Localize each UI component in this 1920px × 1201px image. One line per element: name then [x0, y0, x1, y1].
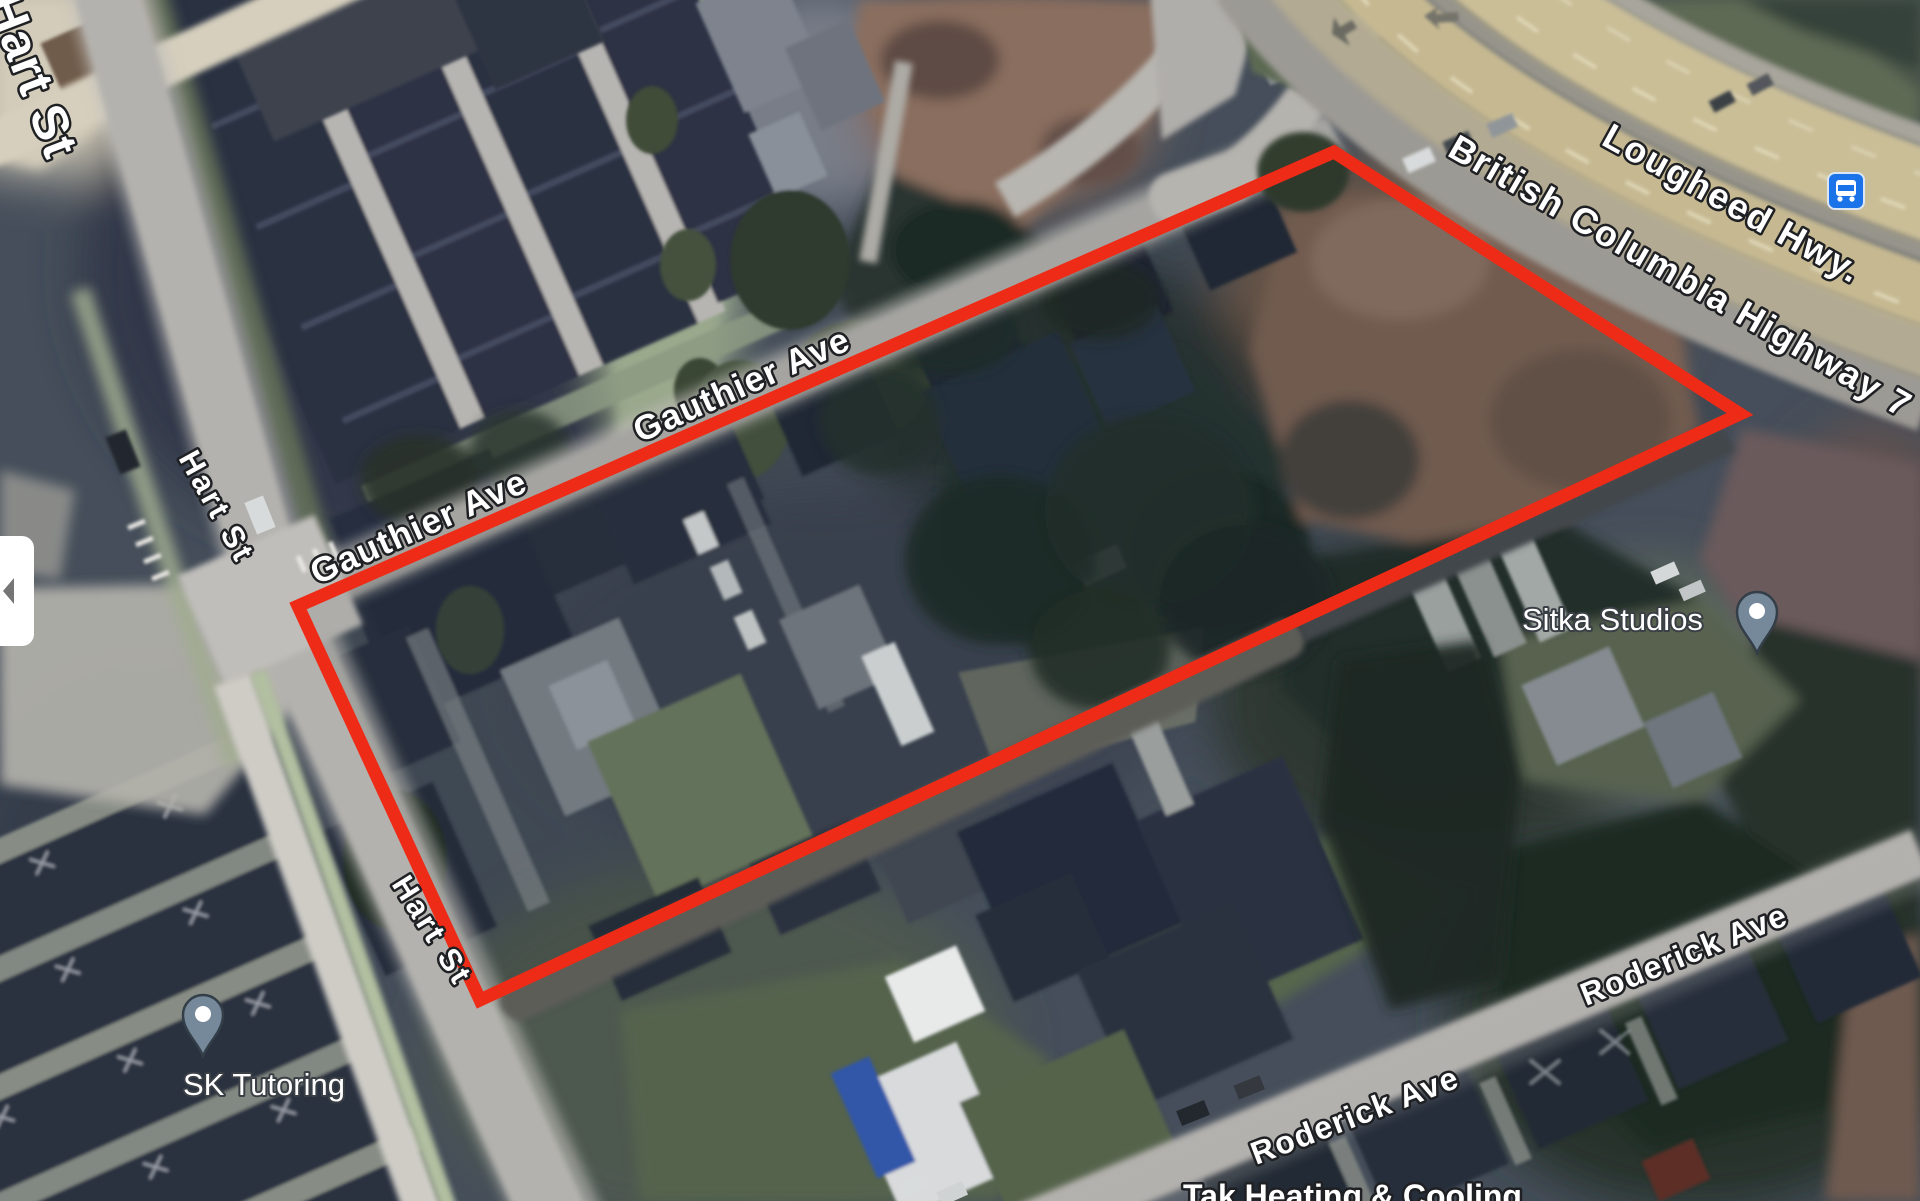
svg-text:Sitka Studios: Sitka Studios: [1522, 602, 1703, 637]
svg-text:SK Tutoring: SK Tutoring: [183, 1067, 345, 1102]
svg-text:Tak Heating & Cooling: Tak Heating & Cooling: [1183, 1178, 1522, 1201]
